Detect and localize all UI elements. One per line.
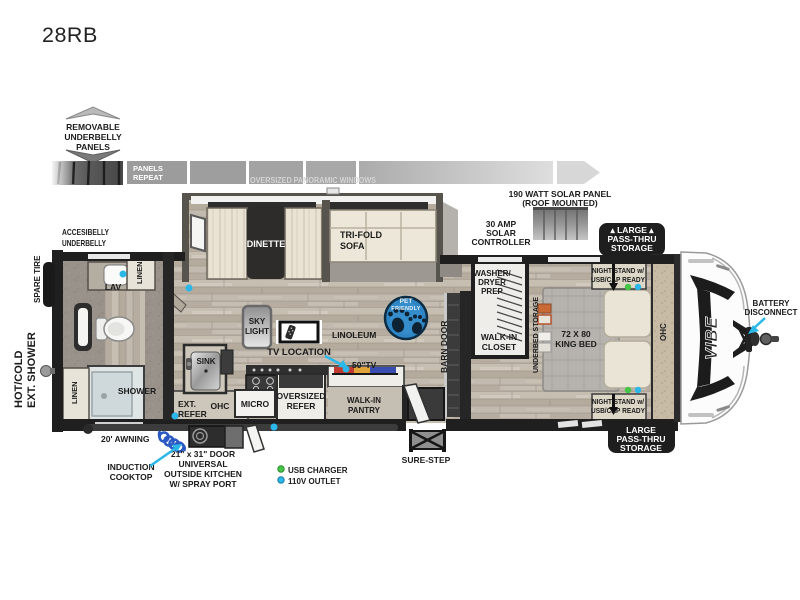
svg-text:SURE-STEP: SURE-STEP [402,455,451,465]
svg-text:LAV: LAV [105,282,122,292]
svg-text:UNDERBELLY: UNDERBELLY [64,132,122,142]
svg-text:UNDERBED STORAGE: UNDERBED STORAGE [531,297,540,373]
svg-text:PANELS: PANELS [76,142,110,152]
svg-text:WASHER/: WASHER/ [473,269,511,278]
svg-text:21" x 31" DOOR: 21" x 31" DOOR [171,449,235,459]
svg-text:WALK-IN: WALK-IN [347,395,381,405]
svg-text:W/ SPRAY PORT: W/ SPRAY PORT [169,479,237,489]
svg-text:LINOLEUM: LINOLEUM [332,330,376,340]
svg-text:REFER: REFER [287,401,316,411]
svg-text:STORAGE: STORAGE [611,243,653,253]
svg-text:OVERSIZED PANORAMIC WINDOWS: OVERSIZED PANORAMIC WINDOWS [250,176,377,185]
svg-text:VIBE: VIBE [702,316,721,360]
svg-text:LIGHT: LIGHT [245,327,269,336]
svg-text:LINEN: LINEN [135,262,144,285]
svg-text:50"TV: 50"TV [352,360,377,370]
svg-text:NIGHT STAND w/: NIGHT STAND w/ [592,268,644,275]
svg-text:STORAGE: STORAGE [620,443,662,453]
svg-text:USB CHARGER: USB CHARGER [288,466,348,475]
svg-text:SKY: SKY [249,317,266,326]
svg-text:NIGHT STAND w/: NIGHT STAND w/ [592,399,644,406]
svg-text:LINEN: LINEN [70,382,79,405]
svg-text:PREP: PREP [481,287,503,296]
svg-text:DISCONNECT: DISCONNECT [745,308,798,317]
svg-text:TRI-FOLD: TRI-FOLD [340,230,382,240]
svg-text:ACCESIBELLY: ACCESIBELLY [62,227,109,237]
svg-text:OVERSIZED: OVERSIZED [276,391,325,401]
svg-text:REFER: REFER [178,409,207,419]
svg-text:SOFA: SOFA [340,241,365,251]
svg-text:FRIENDLY: FRIENDLY [391,306,420,312]
svg-text:USB/CAP READY: USB/CAP READY [591,277,645,284]
svg-text:OUTSIDE KITCHEN: OUTSIDE KITCHEN [164,469,242,479]
svg-text:UNDERBELLY: UNDERBELLY [62,238,106,248]
svg-text:BATTERY: BATTERY [753,299,791,308]
svg-text:20' AWNING: 20' AWNING [101,434,150,444]
svg-text:PANELS: PANELS [133,164,163,173]
svg-text:SHOWER: SHOWER [118,386,156,396]
svg-text:SINK: SINK [196,357,215,366]
svg-text:72 X 80: 72 X 80 [561,329,591,339]
svg-text:REMOVABLE: REMOVABLE [66,122,120,132]
svg-text:CLOSET: CLOSET [482,342,517,352]
svg-text:HOT/COLD: HOT/COLD [13,351,25,408]
svg-text:COOKTOP: COOKTOP [110,472,153,482]
svg-text:USB/CAP READY: USB/CAP READY [591,408,645,415]
svg-text:EXT. SHOWER: EXT. SHOWER [26,332,38,408]
svg-text:(ROOF MOUNTED): (ROOF MOUNTED) [522,198,598,208]
svg-text:28RB: 28RB [42,23,98,47]
svg-text:MICRO: MICRO [241,399,270,409]
svg-text:WALK-IN: WALK-IN [481,332,517,342]
svg-text:DRYER: DRYER [478,278,506,287]
svg-text:OHC: OHC [211,401,230,411]
svg-text:EXT.: EXT. [178,399,196,409]
svg-text:PANTRY: PANTRY [348,405,380,415]
svg-text:SPARE TIRE: SPARE TIRE [33,255,42,303]
svg-text:DINETTE: DINETTE [247,239,286,249]
svg-text:110V OUTLET: 110V OUTLET [288,477,341,486]
svg-text:UNIVERSAL: UNIVERSAL [178,459,227,469]
svg-text:BARN DOOR: BARN DOOR [439,321,449,373]
svg-text:CONTROLLER: CONTROLLER [471,237,530,247]
svg-text:REPEAT: REPEAT [133,173,163,182]
svg-text:OHC: OHC [659,323,668,341]
svg-text:KING BED: KING BED [555,339,597,349]
svg-text:PET: PET [400,298,413,305]
svg-text:INDUCTION: INDUCTION [107,462,154,472]
svg-text:TV LOCATION: TV LOCATION [267,347,331,358]
